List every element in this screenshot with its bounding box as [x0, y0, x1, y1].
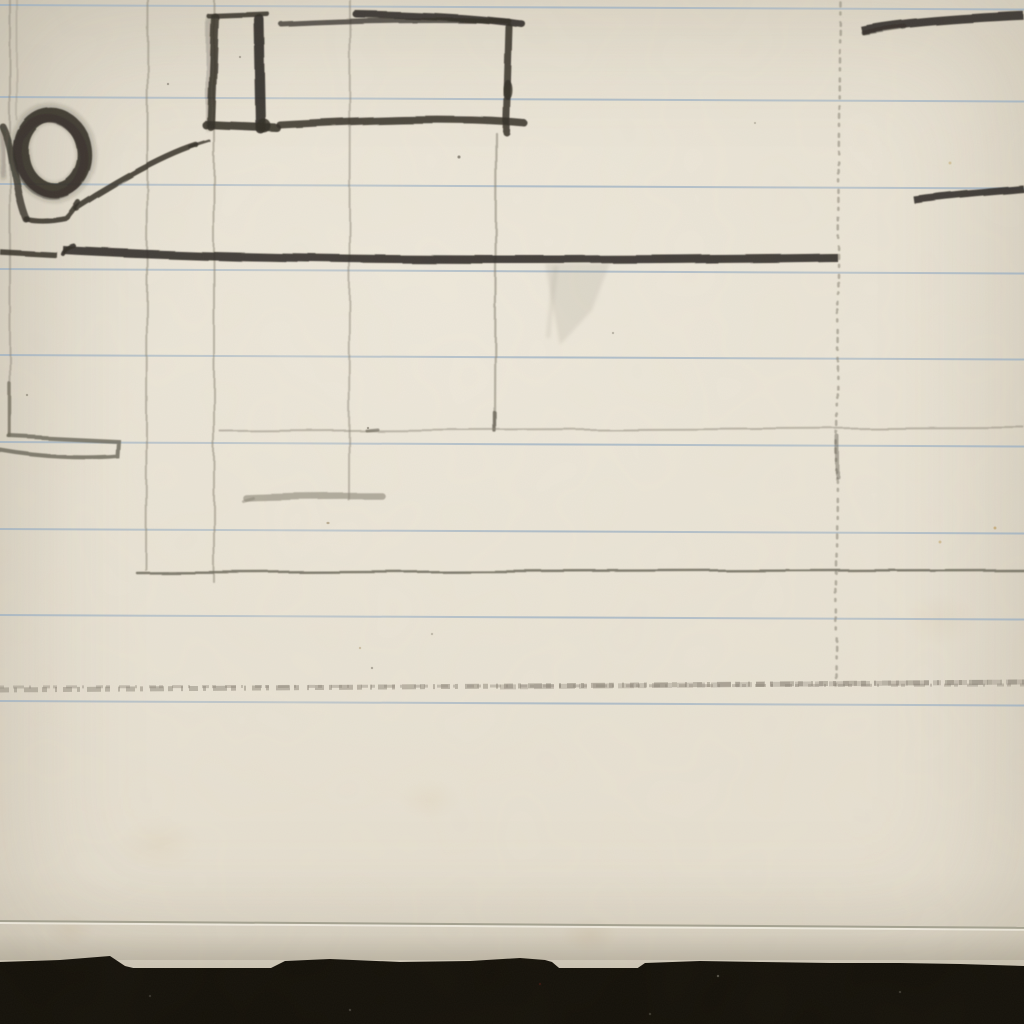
vertical-guide-line-2	[146, 0, 148, 570]
horizontal-guide-tick	[366, 429, 377, 430]
horizontal-frame-line	[137, 570, 1024, 573]
background-dust-specks	[0, 954, 1024, 1024]
small-rectangle-right-bar	[259, 19, 261, 129]
wide-rectangle-right-blob	[504, 80, 513, 100]
horizontal-guide-line-upper	[220, 428, 1024, 431]
small-rectangle-bottom-blob	[257, 119, 271, 133]
wide-rectangle-right-bar	[506, 27, 509, 132]
right-middle-stroke	[914, 189, 1024, 200]
small-rectangle-top-stroke	[209, 14, 267, 16]
small-rectangle-left-bar	[211, 17, 215, 127]
vertical-guide-line-5	[495, 133, 496, 431]
long-horizontal-stroke-left-segment	[0, 252, 57, 255]
pencil-sketch-layer	[0, 0, 1024, 1024]
flag-shape-outline	[0, 436, 118, 457]
vertical-guide-line-6-dotted	[836, 2, 840, 688]
soft-graphite-bar	[246, 496, 382, 498]
sketchbook-page-photo	[0, 0, 1024, 1024]
vertical-guide-line-4	[349, 0, 350, 500]
wide-rectangle-bottom-stroke	[280, 120, 524, 125]
long-horizontal-stroke	[63, 250, 837, 259]
left-edge-arc-smear	[1, 132, 5, 175]
cup-stroke-below-ring	[26, 202, 78, 221]
